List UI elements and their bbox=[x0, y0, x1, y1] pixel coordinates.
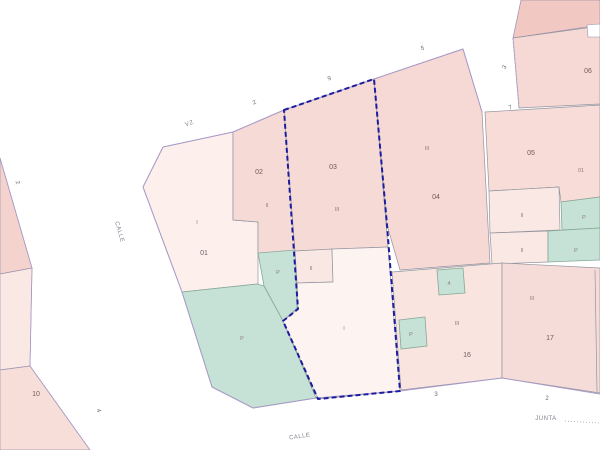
parcel-row1-green[interactable] bbox=[561, 197, 600, 230]
parcel-03-label: 03 bbox=[329, 164, 337, 171]
street-name-top: VZ bbox=[185, 120, 195, 129]
parcel-16-green-sq1[interactable] bbox=[437, 268, 465, 295]
parcel-16-green-sq2[interactable] bbox=[399, 317, 427, 349]
parcel-row1-light[interactable] bbox=[489, 187, 560, 233]
parcel-02-sublabel: II bbox=[265, 203, 269, 209]
parcel-06[interactable] bbox=[513, 26, 600, 108]
row2-light-label: II bbox=[520, 248, 524, 254]
inner-box-label: II bbox=[309, 266, 313, 272]
parcel-05-sublabel: 01 bbox=[578, 168, 584, 174]
parcel-10-label: 10 bbox=[32, 391, 40, 398]
green-small-label: P bbox=[276, 270, 280, 276]
parcel-16-label: 16 bbox=[463, 352, 471, 359]
parcel-04-label: 04 bbox=[432, 194, 440, 201]
parcel-17[interactable] bbox=[502, 263, 600, 393]
row1-light-label: II bbox=[520, 213, 524, 219]
parcel-row2-light[interactable] bbox=[490, 231, 548, 264]
green-row1-label: P bbox=[582, 215, 586, 221]
parcel-16-sublabel: III bbox=[455, 321, 460, 327]
parcel-row2-green[interactable] bbox=[548, 228, 600, 262]
house-number-top-9: 9 bbox=[327, 75, 333, 82]
house-number-top-2: 2 bbox=[252, 99, 258, 106]
cadastral-map-viewport: 01 I 02 II 03 III 04 III 05 01 06 10 16 … bbox=[0, 0, 600, 450]
parcel-03-sublabel: III bbox=[335, 207, 340, 213]
selected-parcel-inner-box[interactable] bbox=[295, 249, 333, 283]
house-number-left-2: 2 bbox=[14, 180, 21, 185]
house-number-top-7: 7 bbox=[508, 104, 514, 111]
green-big-label: P bbox=[240, 336, 244, 342]
parcel-05[interactable] bbox=[485, 105, 600, 202]
green-sq2-label: P bbox=[409, 332, 413, 338]
house-number-top-5: 5 bbox=[420, 46, 425, 53]
street-name-junta: JUNTA bbox=[535, 416, 556, 422]
house-number-bottom-2: 2 bbox=[545, 396, 549, 402]
parcel-02-label: 02 bbox=[255, 169, 263, 176]
street-name-bottom: CALLE bbox=[289, 433, 311, 442]
parcel-01-label: 01 bbox=[200, 250, 208, 257]
house-number-bottom-3: 3 bbox=[434, 392, 438, 398]
junta-boundary-dotted-line bbox=[565, 421, 600, 423]
house-number-top-3: 3 bbox=[502, 64, 509, 70]
parcel-06-label: 06 bbox=[584, 68, 592, 75]
house-number-left-4: 4 bbox=[95, 408, 102, 413]
parcel-17-label: 17 bbox=[546, 335, 554, 342]
parcel-04-sublabel: III bbox=[425, 146, 430, 152]
parcel-05-label: 05 bbox=[527, 150, 535, 157]
parcel-06-notch bbox=[587, 24, 600, 37]
parcel-10[interactable] bbox=[0, 366, 90, 450]
parcel-17-sublabel: III bbox=[530, 296, 535, 302]
green-row2-label: P bbox=[574, 248, 578, 254]
street-name-left: CALLE bbox=[113, 221, 125, 243]
green-sq1-label: 4 bbox=[447, 281, 450, 287]
parcel-left-wedge-b[interactable] bbox=[0, 268, 32, 370]
cadastral-map: 01 I 02 II 03 III 04 III 05 01 06 10 16 … bbox=[0, 0, 600, 450]
